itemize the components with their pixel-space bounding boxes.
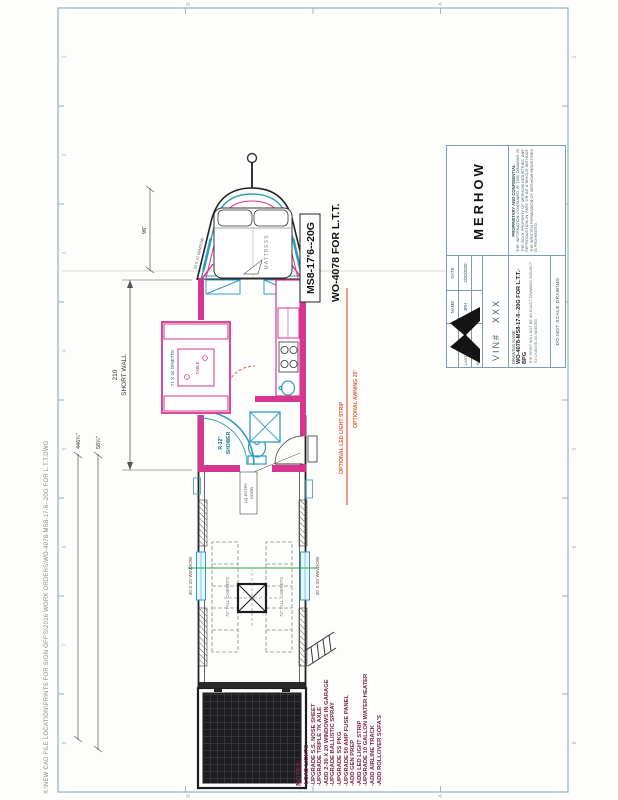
svg-text:OPTIONAL AWNING 20': OPTIONAL AWNING 20'	[353, 370, 359, 428]
svg-text:MS8-17'6--20G: MS8-17'6--20G	[305, 222, 317, 294]
svg-text:6: 6	[62, 545, 68, 548]
vin-row: VIN# XXX	[483, 256, 509, 367]
svg-text:DOOR: DOOR	[249, 487, 254, 499]
dinette-bench	[164, 396, 228, 411]
note-item: -LOAD LIGHTS	[304, 658, 311, 786]
note-item: -UPGRADE S.S. NOSE SHEET	[311, 658, 318, 786]
svg-text:3: 3	[62, 251, 68, 254]
kitchen	[276, 280, 300, 396]
note-item: -UPGRADE TRIPLE 7K AXLE	[317, 658, 324, 786]
svg-text:5: 5	[62, 447, 68, 450]
drawing-name: WO-4078-MS8-17-6--20G FOR L.T.T.-BPG	[516, 259, 528, 364]
svg-text:SHORT WALL: SHORT WALL	[121, 354, 128, 396]
vanity-cabinet	[250, 412, 280, 442]
svg-text:A: A	[438, 2, 444, 6]
svg-text:LQ ENTRY: LQ ENTRY	[243, 483, 248, 503]
svg-text:446¾": 446¾"	[76, 433, 82, 449]
svg-text:30 X 20 WINDOW: 30 X 20 WINDOW	[315, 556, 321, 595]
dimension-overall: 446¾"	[74, 433, 82, 742]
title-block: NAME DATE LAST SAVED BY: JRH 2/20/2020 Q…	[446, 145, 566, 368]
svg-text:5: 5	[572, 447, 578, 450]
landscape-canvas: 8 7 6 5 4 3 2 1 8 6 5 1 B A B A	[0, 0, 618, 800]
svg-text:72" TALL CABINETS: 72" TALL CABINETS	[279, 577, 284, 617]
entry-door: LQ ENTRY DOOR	[194, 436, 318, 514]
svg-text:71 X 34 DINETTE: 71 X 34 DINETTE	[170, 350, 175, 387]
bed: MATTRESS	[214, 208, 292, 278]
dinette-slideout: 71 X 34 DINETTE TABLE	[162, 322, 230, 413]
model-callouts: MS8-17'6--20G WO-4078 FOR L.T.T.	[300, 203, 342, 302]
svg-text:4: 4	[62, 349, 68, 352]
option-annotations: OPTIONAL LED LIGHT STRIP OPTIONAL AWNING…	[339, 288, 359, 505]
roof-vent	[224, 570, 280, 626]
note-item: -UPGRADE 10 GALLON WATER HEATER	[363, 658, 370, 786]
no-scale-note: DO NOT SCALE DRAWING	[551, 256, 565, 367]
fold-out-step	[308, 436, 317, 462]
svg-text:1: 1	[62, 55, 68, 58]
hitch-coupler	[248, 154, 257, 189]
svg-text:OPTIONAL LED LIGHT STRIP: OPTIONAL LED LIGHT STRIP	[339, 401, 345, 474]
vin-value: XXX	[491, 299, 501, 323]
dimension-rear: 56¼"	[94, 436, 102, 752]
utility-box	[194, 478, 201, 494]
svg-text:2: 2	[62, 153, 68, 156]
note-item: -ADD LED LIGHT STRIP	[357, 658, 364, 786]
proprietary-notice: PROPRIETARY AND CONFIDENTIAL THE INFORMA…	[509, 146, 565, 255]
saved-by-date: 2/20/2020	[459, 256, 471, 290]
proprietary-text: THE INFORMATION CONTAINED IN THIS DRAWIN…	[516, 149, 539, 252]
svg-text:210: 210	[112, 369, 119, 380]
note-item: -UPGRADE BALLISTIC SPRAY	[330, 658, 337, 786]
garage: 30 X 20 WINDOW 30 X 20 WINDOW 72" TALL C…	[188, 500, 336, 666]
svg-text:56¼": 56¼"	[96, 436, 102, 449]
note-item: -ADD GEN PREP	[350, 658, 357, 786]
svg-text:A: A	[438, 794, 444, 798]
svg-text:7: 7	[62, 643, 68, 646]
rear-ramp	[198, 684, 306, 788]
svg-text:30 X 20 WINDOW: 30 X 20 WINDOW	[188, 556, 194, 595]
brand-wordmark: MERHOW	[471, 161, 486, 240]
note-item: -UPGRADE SS PKG	[337, 658, 344, 786]
file-path: X:\NEW CAD FILE LOCATION\PRINTS FOR SIGN…	[44, 440, 50, 794]
svg-text:B: B	[186, 794, 192, 798]
svg-text:R-32": R-32"	[218, 436, 224, 450]
scanned-drawing-sheet: 8 7 6 5 4 3 2 1 8 6 5 1 B A B A	[0, 0, 618, 800]
drawing-name-box: DRAWING NAME: WO-4078-MS8-17-6--20G FOR …	[509, 256, 551, 367]
utility-box	[306, 480, 313, 498]
notes-title: NOTES:	[296, 658, 303, 786]
vin-label: VIN#	[491, 333, 501, 361]
svg-text:6: 6	[572, 545, 578, 548]
svg-text:72" TALL CABINETS: 72" TALL CABINETS	[225, 577, 230, 617]
svg-text:8: 8	[572, 741, 578, 744]
svg-text:1: 1	[572, 55, 578, 58]
note-item: -ADD ROLLOVER SOFA'S	[377, 658, 384, 786]
merhow-logo-icon	[447, 303, 483, 367]
wheel-well-hatch	[199, 608, 207, 666]
date-header: DATE	[447, 256, 458, 290]
svg-text:TABLE: TABLE	[195, 361, 200, 374]
note-item: -UPGRADE 50 AMP FUSE PANEL	[344, 658, 351, 786]
note-item: -ADD AIRLINE TRACK	[370, 658, 377, 786]
svg-text:MATTRESS: MATTRESS	[264, 235, 270, 270]
svg-text:SHOWER: SHOWER	[226, 431, 232, 454]
svg-text:96": 96"	[142, 226, 148, 234]
svg-text:WO-4078 FOR L.T.T.: WO-4078 FOR L.T.T.	[330, 203, 342, 302]
dinette-bench	[164, 324, 228, 339]
notes-block: NOTES: -LOAD LIGHTS -UPGRADE S.S. NOSE S…	[296, 658, 383, 786]
svg-text:B: B	[186, 2, 192, 6]
drawing-note: THE PRINT WILL NOT BE AN EXACT DRAWING S…	[529, 259, 538, 364]
note-item: -ADD 2-30 X 20 WINDOWS IN GARAGE	[324, 658, 331, 786]
svg-text:8: 8	[62, 741, 68, 744]
dimension-nose: 96"	[142, 186, 154, 273]
